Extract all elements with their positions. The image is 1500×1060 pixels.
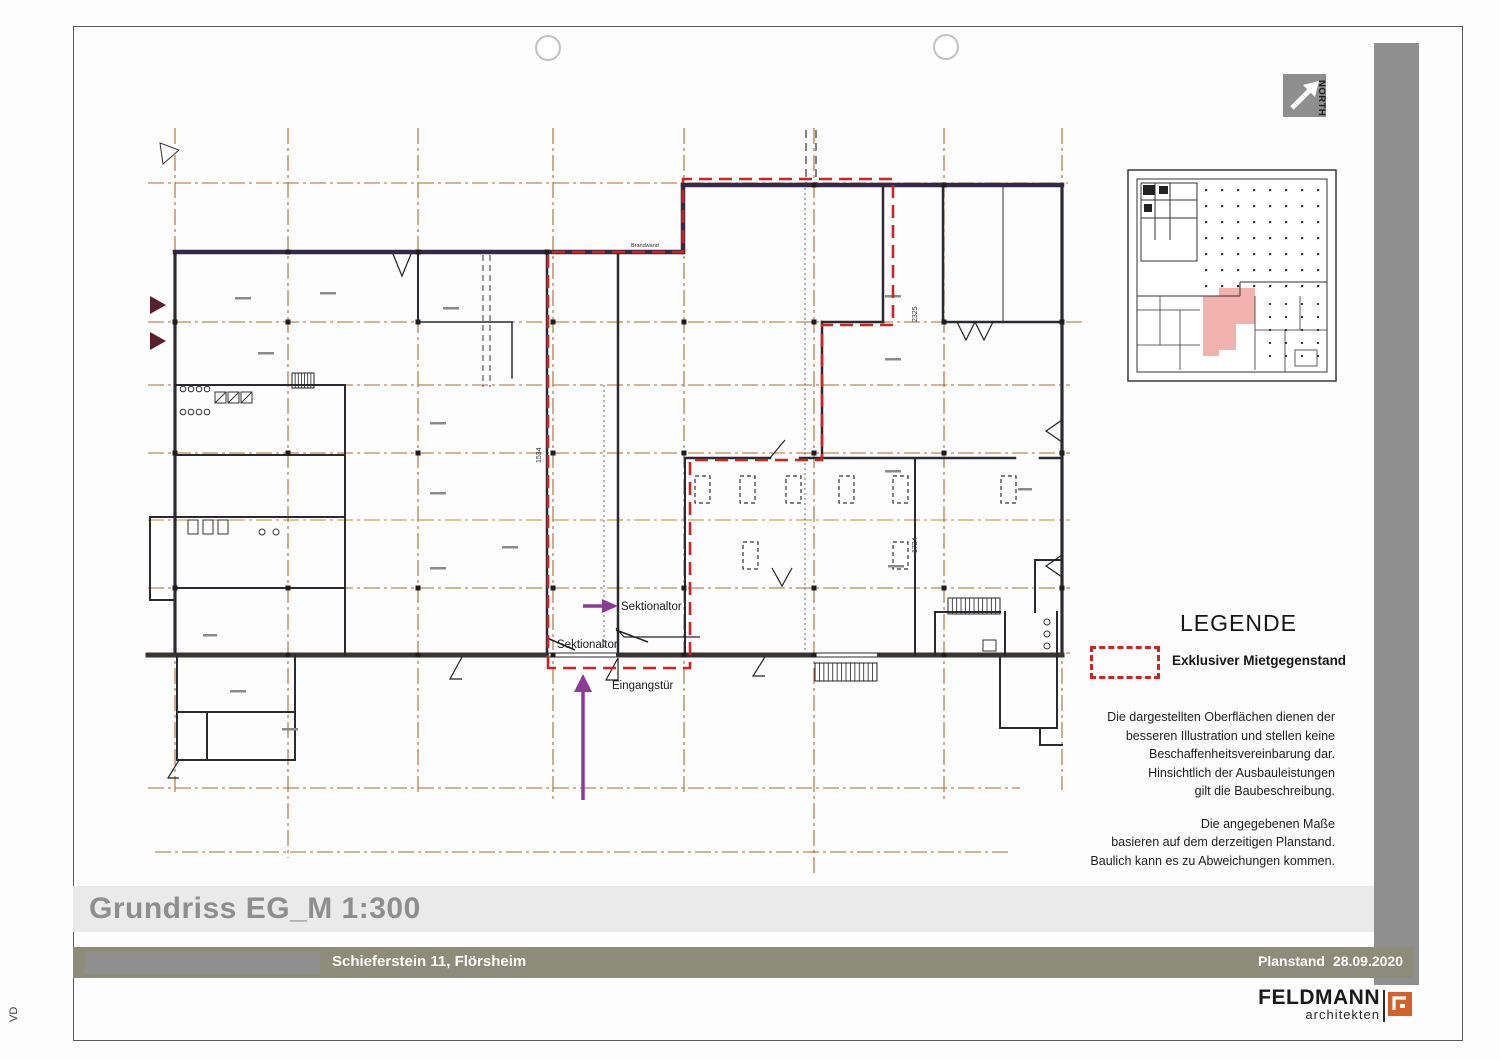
walls bbox=[148, 185, 1062, 760]
sektionaltor-label: Sektionaltor bbox=[557, 639, 618, 651]
marker-triangle-icon bbox=[150, 332, 166, 350]
disclaimer-line: Die angegebenen Maße bbox=[985, 815, 1335, 834]
marker-triangle-icon bbox=[150, 296, 166, 314]
disclaimer-line: Die dargestellten Oberflächen dienen der bbox=[985, 708, 1335, 727]
logo-name: FELDMANN bbox=[1258, 988, 1380, 1008]
rental-boundary bbox=[548, 179, 893, 668]
flag-icon bbox=[160, 143, 179, 164]
dimension-text: 1534 bbox=[536, 447, 543, 463]
sektionaltor-label: Sektionaltor bbox=[621, 601, 682, 613]
arrow-up-icon bbox=[574, 674, 592, 692]
north-label: NORTH bbox=[1316, 80, 1327, 116]
title-band: Grundriss EG_M 1:300 bbox=[73, 886, 1374, 932]
dashed-partitions bbox=[483, 130, 1003, 650]
project-name: Schieferstein 11, Flörsheim bbox=[332, 953, 526, 970]
stairs bbox=[292, 373, 1000, 681]
disclaimer-text: Die dargestellten Oberflächen dienen der… bbox=[985, 708, 1335, 870]
legend-title: LEGENDE bbox=[1180, 610, 1297, 637]
disclaimer-line: Beschaffenheitsvereinbarung dar. bbox=[985, 745, 1335, 764]
footer-band: Schieferstein 11, Flörsheim Planstand28.… bbox=[73, 947, 1413, 978]
arrow-right-icon bbox=[602, 599, 618, 613]
planstand-date: 28.09.2020 bbox=[1333, 953, 1403, 969]
disclaimer-line: Hinsichtlich der Ausbauleistungen bbox=[985, 764, 1335, 783]
plan-dimensions: 1534 2325 1724 Brandwand bbox=[536, 243, 919, 553]
legend-item-label: Exklusiver Mietgegenstand bbox=[1172, 653, 1346, 668]
disclaimer-line: besseren Illustration und stellen keine bbox=[985, 727, 1335, 746]
dimension-text: 2325 bbox=[912, 306, 919, 322]
roof-opening-rects bbox=[695, 476, 1016, 569]
feldmann-logo-icon bbox=[1388, 992, 1412, 1016]
disclaimer-line: gilt die Baubeschreibung. bbox=[985, 782, 1335, 801]
planstand: Planstand28.09.2020 bbox=[1203, 953, 1403, 969]
drawing-title: Grundriss EG_M 1:300 bbox=[89, 892, 421, 926]
fixtures bbox=[180, 386, 1050, 651]
disclaimer-line: basieren auf dem derzeitigen Planstand. bbox=[985, 833, 1335, 852]
legend-swatch-red-dashed bbox=[1090, 646, 1160, 679]
dimension-text: 1724 bbox=[912, 537, 919, 553]
brandwand-label: Brandwand bbox=[631, 243, 659, 249]
scanned-plan-page: 1534 2325 1724 Brandwand Sektionaltor Se… bbox=[0, 0, 1500, 1060]
page-side-label: VD bbox=[8, 1007, 20, 1022]
key-plan bbox=[1128, 170, 1336, 381]
logo-divider bbox=[1383, 990, 1385, 1022]
redacted-box bbox=[85, 951, 320, 974]
architect-logo: FELDMANN architekten bbox=[1240, 988, 1412, 1026]
logo-subtitle: architekten bbox=[1258, 1008, 1380, 1021]
planstand-label: Planstand bbox=[1258, 953, 1325, 969]
eingangstuer-label: Eingangstür bbox=[612, 680, 674, 692]
disclaimer-line: Baulich kann es zu Abweichungen kommen. bbox=[985, 852, 1335, 871]
annotations: Sektionaltor Sektionaltor Eingangstür bbox=[557, 599, 682, 800]
